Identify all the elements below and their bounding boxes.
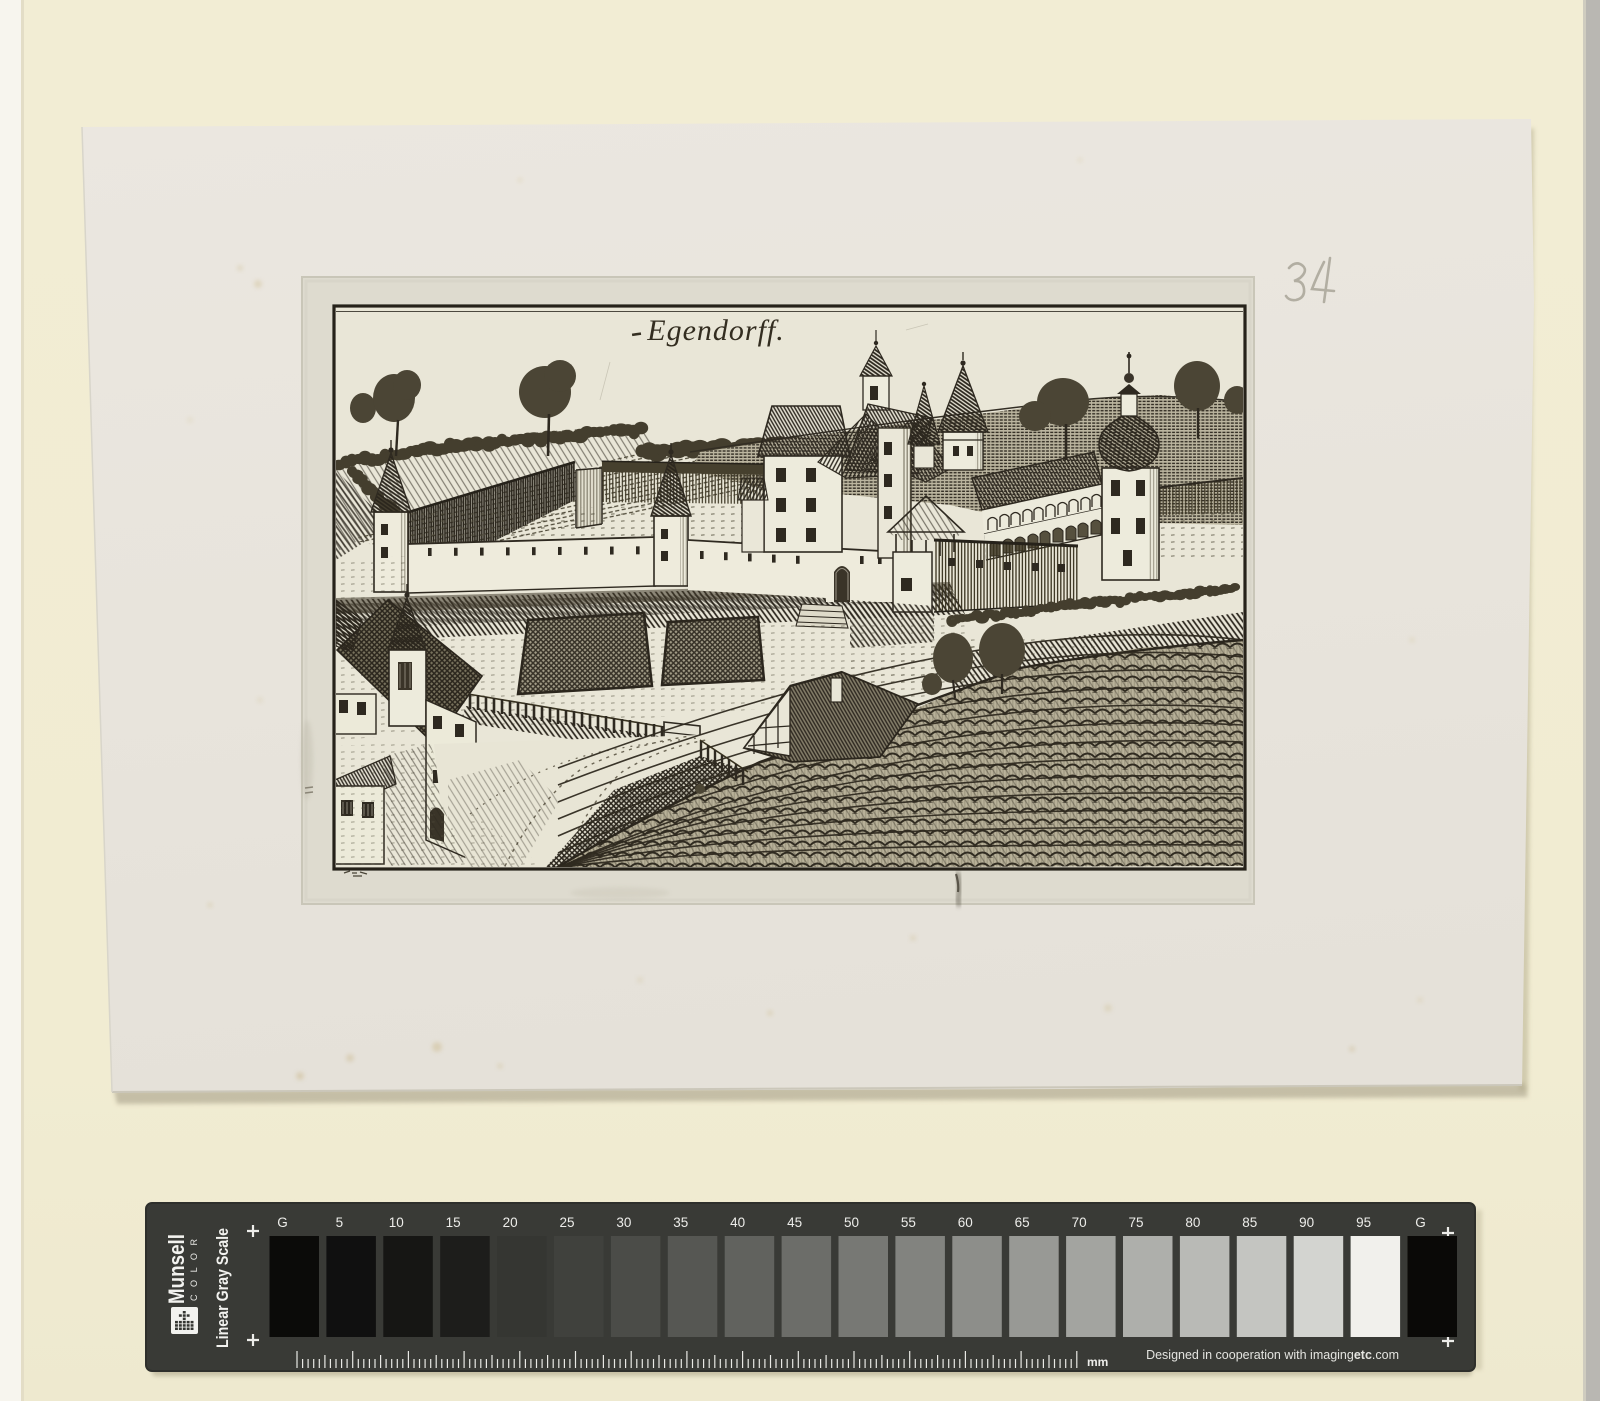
svg-text:95: 95 [1356,1215,1371,1230]
svg-text:80: 80 [1185,1215,1200,1230]
svg-text:Egendorff.: Egendorff. [646,314,785,347]
svg-text:55: 55 [901,1215,916,1230]
svg-text:65: 65 [1015,1215,1030,1230]
svg-text:10: 10 [389,1215,404,1230]
svg-text:mm: mm [1087,1355,1108,1369]
svg-text:60: 60 [958,1215,973,1230]
svg-text:70: 70 [1072,1215,1087,1230]
svg-text:40: 40 [730,1215,745,1230]
svg-text:15: 15 [446,1215,461,1230]
svg-text:75: 75 [1128,1215,1143,1230]
svg-text:35: 35 [673,1215,688,1230]
svg-text:45: 45 [787,1215,802,1230]
svg-text:30: 30 [616,1215,631,1230]
svg-text:25: 25 [559,1215,574,1230]
svg-text:85: 85 [1242,1215,1257,1230]
svg-text:G: G [1415,1215,1426,1230]
svg-text:5: 5 [336,1215,344,1230]
svg-text:Linear Gray Scale: Linear Gray Scale [213,1228,232,1348]
svg-text:Designed in cooperation with i: Designed in cooperation with imagingetc.… [1146,1348,1399,1362]
svg-text:G: G [277,1215,288,1230]
svg-text:90: 90 [1299,1215,1314,1230]
svg-text:Munsell: Munsell [164,1234,189,1304]
svg-text:50: 50 [844,1215,859,1230]
svg-text:20: 20 [503,1215,518,1230]
